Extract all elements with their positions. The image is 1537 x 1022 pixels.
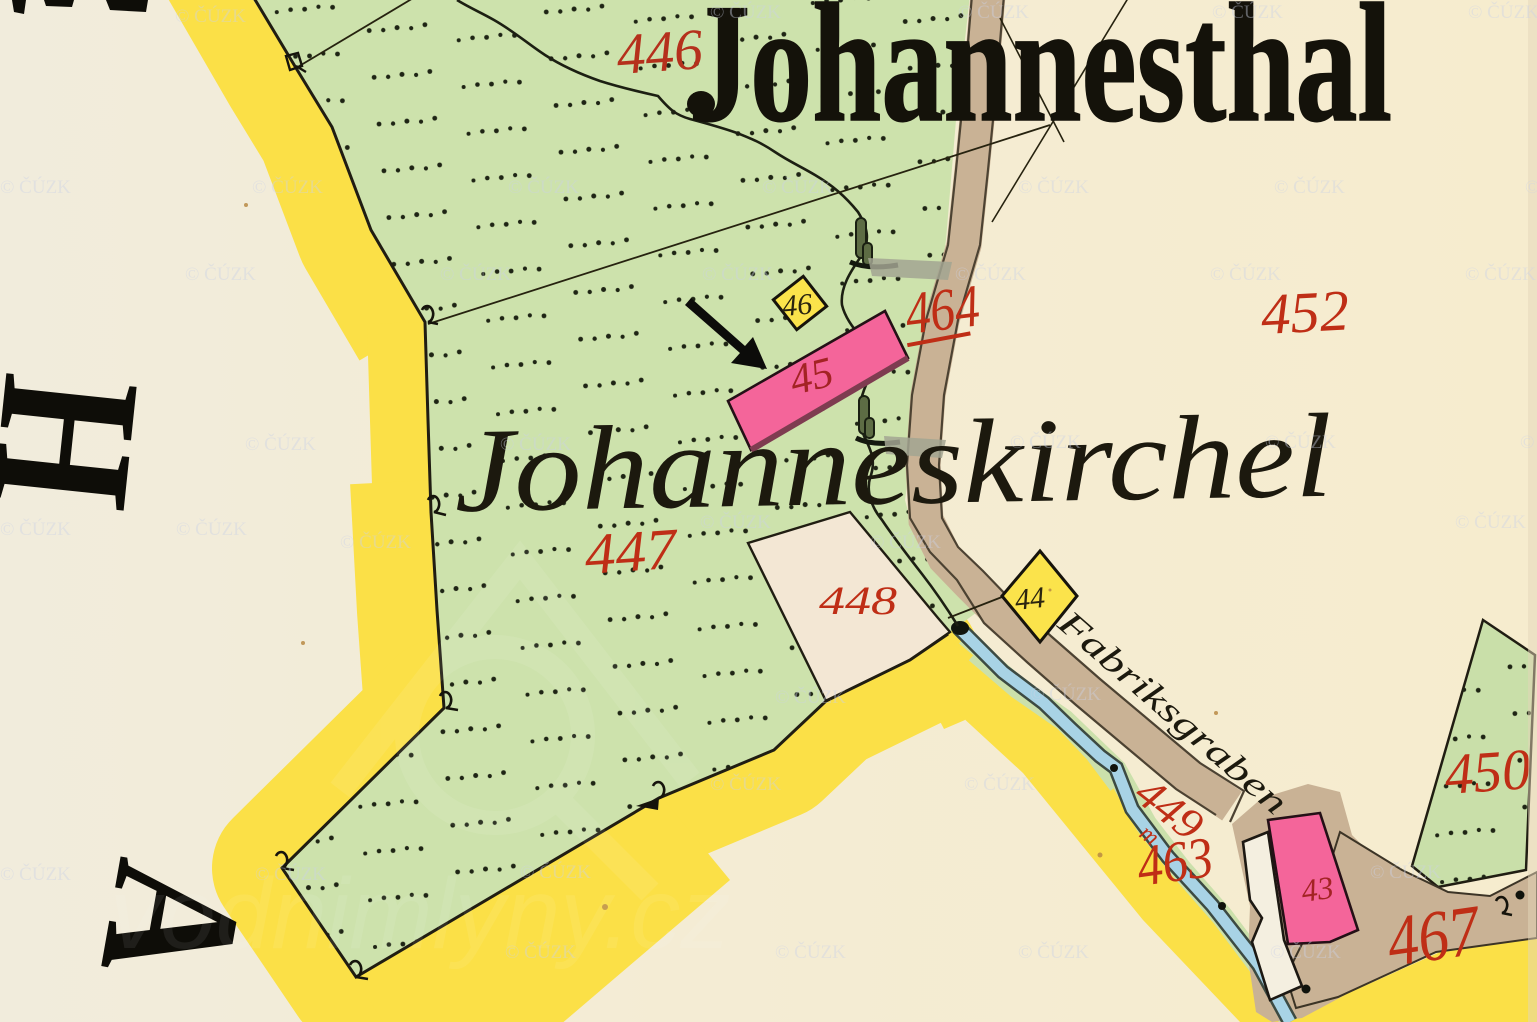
svg-text:43: 43: [1299, 869, 1336, 909]
svg-text:© ČÚZK: © ČÚZK: [1210, 263, 1281, 285]
svg-text:Johanneskirchel: Johanneskirchel: [453, 389, 1333, 537]
svg-text:© ČÚZK: © ČÚZK: [1270, 941, 1341, 963]
svg-text:© ČÚZK: © ČÚZK: [702, 263, 773, 285]
svg-text:© ČÚZK: © ČÚZK: [252, 176, 323, 198]
svg-text:© ČÚZK: © ČÚZK: [710, 773, 781, 795]
svg-text:© ČÚZK: © ČÚZK: [710, 1, 781, 23]
svg-text:© ČÚZK: © ČÚZK: [1018, 176, 1089, 198]
svg-text:© ČÚZK: © ČÚZK: [440, 263, 511, 285]
svg-text:© ČÚZK: © ČÚZK: [1265, 431, 1336, 453]
svg-text:© ČÚZK: © ČÚZK: [955, 263, 1026, 285]
svg-text:© ČÚZK: © ČÚZK: [1465, 263, 1536, 285]
svg-text:© ČÚZK: © ČÚZK: [500, 433, 571, 455]
svg-text:© ČÚZK: © ČÚZK: [245, 433, 316, 455]
svg-text:450: 450: [1442, 736, 1532, 807]
svg-text:© ČÚZK: © ČÚZK: [1370, 861, 1441, 883]
svg-text:© ČÚZK: © ČÚZK: [185, 263, 256, 285]
svg-text:447: 447: [582, 516, 680, 587]
svg-text:© ČÚZK: © ČÚZK: [775, 686, 846, 708]
svg-text:© ČÚZK: © ČÚZK: [1455, 511, 1526, 533]
svg-text:Johannesthal: Johannesthal: [688, 0, 1392, 157]
svg-text:© ČÚZK: © ČÚZK: [176, 518, 247, 540]
svg-text:467: 467: [1382, 889, 1487, 981]
svg-text:© ČÚZK: © ČÚZK: [958, 1, 1029, 23]
svg-text:© ČÚZK: © ČÚZK: [700, 511, 771, 533]
svg-text:© ČÚZK: © ČÚZK: [964, 773, 1035, 795]
svg-text:© ČÚZK: © ČÚZK: [340, 531, 411, 553]
svg-text:© ČÚZK: © ČÚZK: [520, 861, 591, 883]
svg-text:© ČÚZK: © ČÚZK: [508, 176, 579, 198]
svg-text:46: 46: [781, 287, 814, 322]
svg-text:vodnimlyny.cz: vodnimlyny.cz: [110, 858, 731, 970]
svg-text:© ČÚZK: © ČÚZK: [1468, 1, 1537, 23]
svg-text:© ČÚZK: © ČÚZK: [870, 531, 941, 553]
svg-text:© ČÚZK: © ČÚZK: [1030, 683, 1101, 705]
svg-text:© ČÚZK: © ČÚZK: [505, 941, 576, 963]
svg-text:© ČÚZK: © ČÚZK: [1018, 941, 1089, 963]
svg-text:© ČÚZK: © ČÚZK: [1212, 1, 1283, 23]
svg-text:© ČÚZK: © ČÚZK: [1525, 176, 1537, 198]
svg-text:© ČÚZK: © ČÚZK: [0, 176, 71, 198]
svg-text:© ČÚZK: © ČÚZK: [775, 941, 846, 963]
svg-text:© ČÚZK: © ČÚZK: [1010, 431, 1081, 453]
svg-text:463: 463: [1133, 824, 1217, 899]
svg-text:452: 452: [1259, 277, 1350, 347]
svg-text:© ČÚZK: © ČÚZK: [1520, 431, 1537, 453]
svg-text:© ČÚZK: © ČÚZK: [0, 863, 71, 885]
svg-text:© ČÚZK: © ČÚZK: [0, 518, 71, 540]
svg-text:448: 448: [819, 578, 897, 623]
svg-text:© ČÚZK: © ČÚZK: [255, 863, 326, 885]
svg-text:© ČÚZK: © ČÚZK: [175, 5, 246, 27]
svg-text:H: H: [0, 366, 183, 518]
svg-text:44: 44: [1013, 581, 1046, 617]
svg-text:446: 446: [614, 16, 704, 87]
svg-text:© ČÚZK: © ČÚZK: [762, 176, 833, 198]
svg-text:© ČÚZK: © ČÚZK: [1274, 176, 1345, 198]
